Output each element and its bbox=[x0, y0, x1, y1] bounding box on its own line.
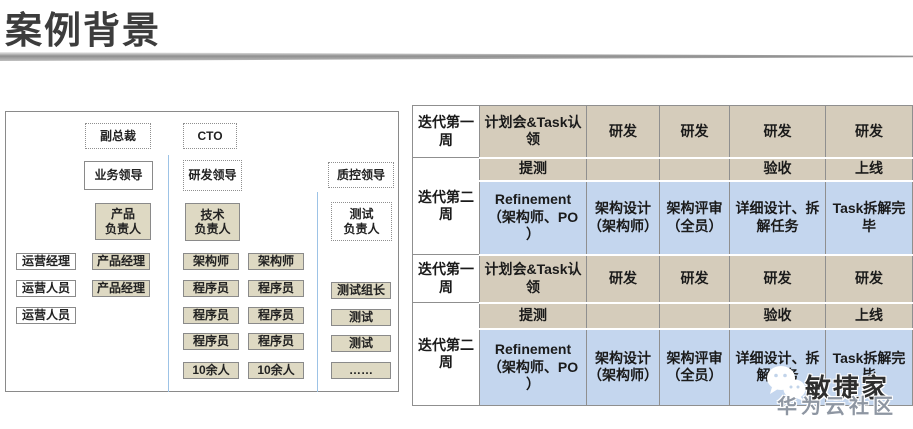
org-box-test-1: 测试 bbox=[331, 309, 391, 326]
schedule-cell: 研发 bbox=[730, 255, 826, 303]
schedule-cell: 详细设计、拆 解任务 bbox=[730, 181, 826, 255]
schedule-cell: 计划会&Task认 领 bbox=[480, 106, 587, 158]
schedule-cell: 研发 bbox=[660, 255, 730, 303]
schedule-cell bbox=[587, 158, 660, 181]
title-divider bbox=[0, 52, 913, 61]
schedule-cell: 架构评审 （全员） bbox=[660, 329, 730, 406]
watermark-community: 华为云社区 bbox=[777, 390, 897, 419]
org-box-test-3: …… bbox=[331, 362, 391, 379]
schedule-cell: 研发 bbox=[587, 106, 660, 158]
schedule-cell: Refinement （架构师、PO ） bbox=[480, 181, 587, 255]
schedule-cell: 验收 bbox=[730, 158, 826, 181]
schedule-cell: 研发 bbox=[587, 255, 660, 303]
schedule-cell: 研发 bbox=[730, 106, 826, 158]
org-box-product-owner: 产品 负责人 bbox=[95, 203, 151, 240]
iteration-week-cell: 迭代第一 周 bbox=[413, 106, 480, 158]
org-box-dev-a-1: 程序员 bbox=[183, 280, 239, 297]
org-box-qa-leader: 质控领导 bbox=[328, 162, 394, 188]
org-box-dev-a-3: 程序员 bbox=[183, 333, 239, 350]
schedule-cell: 验收 bbox=[730, 303, 826, 329]
schedule-cell: 架构评审 （全员） bbox=[660, 181, 730, 255]
org-box-product-manager-1: 产品经理 bbox=[92, 280, 150, 297]
schedule-cell: 架构设计 （架构师） bbox=[587, 181, 660, 255]
org-box-dev-a-0: 架构师 bbox=[183, 253, 239, 270]
org-box-dev-b-0: 架构师 bbox=[248, 253, 304, 270]
schedule-cell bbox=[660, 158, 730, 181]
schedule-cell: 提测 bbox=[480, 158, 587, 181]
org-box-dev-b-2: 程序员 bbox=[248, 307, 304, 324]
iteration-week-cell: 迭代第二 周 bbox=[413, 303, 480, 406]
org-box-operations-1: 运营人员 bbox=[16, 280, 76, 297]
org-box-dev-b-1: 程序员 bbox=[248, 280, 304, 297]
schedule-cell bbox=[660, 303, 730, 329]
schedule-cell bbox=[587, 303, 660, 329]
org-box-tech-owner: 技术 负责人 bbox=[185, 203, 240, 241]
org-box-operations-2: 运营人员 bbox=[16, 307, 76, 324]
org-box-dev-a-2: 程序员 bbox=[183, 307, 239, 324]
org-box-dev-b-3: 程序员 bbox=[248, 333, 304, 350]
org-box-product-manager-0: 产品经理 bbox=[92, 253, 150, 270]
org-box-dev-a-4: 10余人 bbox=[183, 362, 239, 379]
iteration-week-cell: 迭代第二 周 bbox=[413, 158, 480, 255]
schedule-cell: 提测 bbox=[480, 303, 587, 329]
schedule-cell: 研发 bbox=[826, 106, 913, 158]
schedule-cell: 架构设计 （架构师） bbox=[587, 329, 660, 406]
schedule-cell: 研发 bbox=[660, 106, 730, 158]
schedule-cell: 研发 bbox=[826, 255, 913, 303]
schedule-cell: 上线 bbox=[826, 158, 913, 181]
page-title: 案例背景 bbox=[5, 0, 161, 54]
schedule-cell: 上线 bbox=[826, 303, 913, 329]
org-box-test-2: 测试 bbox=[331, 335, 391, 352]
org-box-vice-president: 副总裁 bbox=[85, 123, 151, 149]
org-chart-panel: 副总裁 CTO 业务领导 研发领导 质控领导 产品 负责人 技术 负责人 测试 … bbox=[5, 111, 399, 392]
org-box-rnd-leader: 研发领导 bbox=[183, 160, 242, 191]
section-divider-line bbox=[317, 192, 318, 392]
schedule-cell: Refinement （架构师、PO ） bbox=[480, 329, 587, 406]
org-box-test-owner: 测试 负责人 bbox=[331, 202, 392, 241]
org-box-cto: CTO bbox=[183, 123, 237, 149]
schedule-cell: 计划会&Task认 领 bbox=[480, 255, 587, 303]
section-divider-line bbox=[168, 155, 169, 392]
iteration-week-cell: 迭代第一 周 bbox=[413, 255, 480, 303]
org-box-business-leader: 业务领导 bbox=[84, 161, 153, 190]
iteration-schedule-table: 迭代第一 周 计划会&Task认 领 研发 研发 研发 研发 迭代第二 周 提测… bbox=[412, 105, 913, 406]
schedule-cell: Task拆解完 毕 bbox=[826, 181, 913, 255]
org-box-test-0: 测试组长 bbox=[331, 282, 391, 299]
org-box-operations-0: 运营经理 bbox=[16, 253, 76, 270]
org-box-dev-b-4: 10余人 bbox=[248, 362, 304, 379]
